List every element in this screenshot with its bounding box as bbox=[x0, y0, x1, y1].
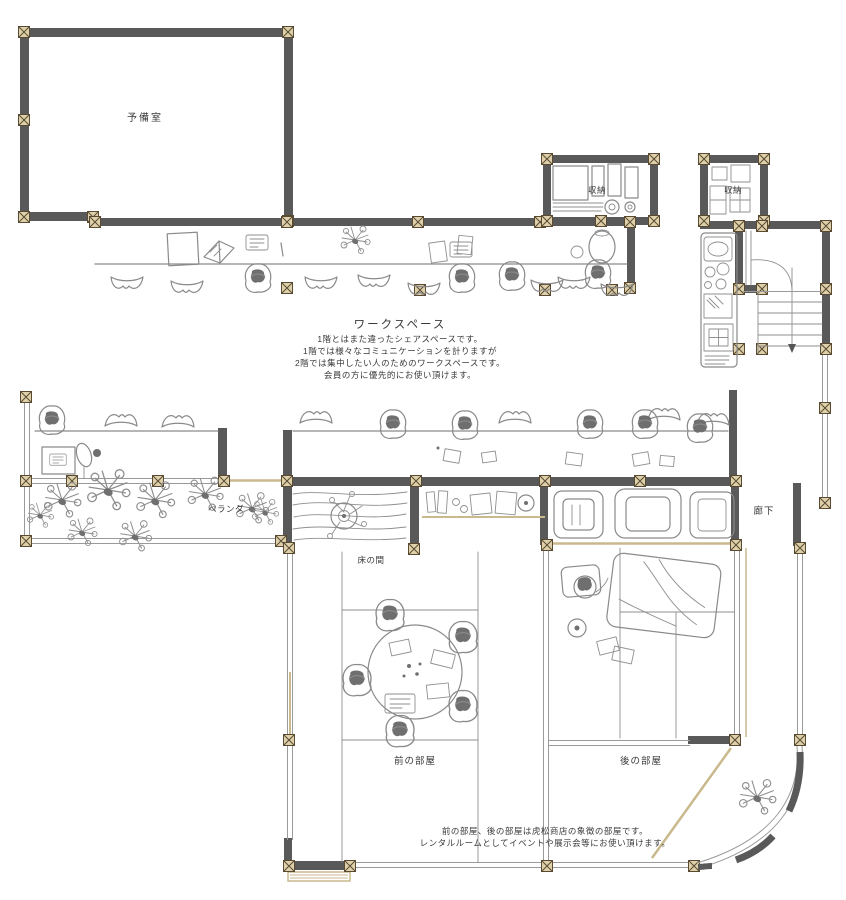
person-figure bbox=[577, 410, 602, 438]
cushion-storage bbox=[554, 489, 734, 538]
column-marker-icon bbox=[19, 27, 30, 38]
column-marker-icon bbox=[21, 476, 32, 487]
storage-1-label: 収納 bbox=[588, 185, 606, 195]
back-room-label: 後の部屋 bbox=[620, 755, 662, 767]
column-marker-icon bbox=[90, 217, 101, 228]
column-marker-icon bbox=[649, 154, 660, 165]
plant-sketch bbox=[27, 502, 53, 527]
column-marker-icon bbox=[734, 221, 745, 232]
easel-sketch bbox=[74, 441, 95, 468]
plant-sketch bbox=[88, 470, 130, 510]
corridor-label: 廊下 bbox=[753, 505, 774, 517]
column-markers bbox=[19, 27, 832, 872]
column-marker-icon bbox=[820, 498, 831, 509]
curved-corner-wall bbox=[697, 746, 802, 868]
stairs-down-arrow-icon bbox=[788, 344, 796, 353]
workspace-desc-line: 会員の方に優先的にお使い頂けます。 bbox=[324, 370, 476, 380]
spare-room-label: 予備室 bbox=[127, 111, 163, 124]
column-marker-icon bbox=[282, 476, 293, 487]
workspace-desc-line: 1階では様々なコミュニケーションを計りますが bbox=[303, 346, 497, 356]
column-marker-icon bbox=[19, 212, 30, 223]
front-room-contents bbox=[342, 552, 478, 862]
plant-sketch bbox=[120, 521, 152, 551]
column-marker-icon bbox=[283, 27, 294, 38]
column-marker-icon bbox=[219, 476, 230, 487]
paper-sketch bbox=[426, 683, 449, 699]
person-figure bbox=[449, 621, 477, 652]
desk-sketch bbox=[42, 447, 75, 474]
column-marker-icon bbox=[795, 543, 806, 554]
person-figure bbox=[499, 262, 524, 290]
paper-sketch bbox=[431, 650, 456, 669]
column-marker-icon bbox=[284, 543, 295, 554]
laptop-sketch bbox=[246, 235, 268, 250]
chair-sketch bbox=[358, 275, 390, 286]
chair-sketch bbox=[171, 281, 203, 292]
column-marker-icon bbox=[19, 115, 30, 126]
column-marker-icon bbox=[411, 476, 422, 487]
workspace-top-desk bbox=[95, 226, 633, 295]
thresholds-and-braces bbox=[224, 481, 746, 882]
column-marker-icon bbox=[282, 217, 293, 228]
staircase bbox=[743, 231, 822, 353]
plant-sketch bbox=[45, 483, 81, 518]
chair-sketch bbox=[300, 412, 332, 423]
chair-sketch bbox=[305, 277, 337, 288]
person-figure bbox=[452, 411, 477, 439]
column-marker-icon bbox=[699, 216, 710, 227]
workspace-desc-line: 1階とはまた違ったシェアスペースです。 bbox=[317, 334, 482, 344]
column-marker-icon bbox=[21, 536, 32, 547]
column-marker-icon bbox=[596, 216, 607, 227]
tokonoma-label: 床の間 bbox=[357, 555, 384, 565]
column-marker-icon bbox=[409, 544, 420, 555]
person-figure bbox=[687, 414, 712, 442]
column-marker-icon bbox=[699, 154, 710, 165]
paper-sketch bbox=[389, 639, 411, 656]
chair-sketch bbox=[162, 416, 194, 427]
futon-sketch bbox=[606, 552, 722, 639]
person-figure bbox=[632, 410, 657, 438]
person-figure bbox=[449, 690, 477, 721]
workspace-title: ワークスペース bbox=[354, 318, 447, 331]
column-marker-icon bbox=[635, 476, 646, 487]
column-marker-icon bbox=[730, 735, 741, 746]
chair-sketch bbox=[105, 415, 137, 426]
paper-sketch bbox=[457, 235, 473, 254]
tokonoma-alcove bbox=[293, 492, 407, 541]
person-figure bbox=[386, 715, 414, 746]
back-room-contents bbox=[561, 548, 734, 738]
person-figure bbox=[343, 664, 371, 695]
chair-sketch bbox=[499, 412, 531, 423]
paper-sketch bbox=[429, 241, 448, 263]
column-marker-icon bbox=[649, 216, 660, 227]
workspace-desc-line: 2階では集中したい人のためのワークスペースです。 bbox=[295, 358, 505, 368]
column-marker-icon bbox=[345, 861, 356, 872]
column-marker-icon bbox=[759, 154, 770, 165]
note-line: レンタルルームとしてイベントや展示会等にお使い頂けます。 bbox=[420, 838, 671, 848]
veranda-label: ベランダ bbox=[208, 504, 244, 514]
utility-cabinet bbox=[701, 233, 737, 367]
column-marker-icon bbox=[625, 217, 636, 228]
person-figure bbox=[39, 406, 64, 434]
floor-plan-page: 予備室 収納 収納 ワークスペース 1階とはまた違ったシェアスペースです。 1階… bbox=[0, 0, 846, 900]
pen-sketch bbox=[281, 243, 283, 256]
plant-sketch bbox=[740, 780, 776, 815]
open-book-sketch bbox=[204, 241, 234, 263]
paper-sketch bbox=[565, 452, 583, 466]
column-marker-icon bbox=[820, 403, 831, 414]
column-marker-icon bbox=[689, 861, 700, 872]
bowl-sketch bbox=[571, 246, 583, 258]
chair-sketch bbox=[648, 409, 680, 420]
shelf-items bbox=[426, 491, 534, 515]
paper-sketch bbox=[443, 449, 461, 464]
workspace-mid-left bbox=[35, 406, 218, 478]
column-marker-icon bbox=[284, 735, 295, 746]
note-line: 前の部屋、後の部屋は虎松商店の象徴の部屋です。 bbox=[442, 826, 648, 836]
plant-sketch bbox=[137, 482, 175, 518]
plant-sketch bbox=[341, 226, 370, 254]
column-marker-icon bbox=[542, 154, 553, 165]
paper-sketch bbox=[660, 455, 675, 466]
column-marker-icon bbox=[540, 476, 551, 487]
column-marker-icon bbox=[731, 476, 742, 487]
paper-sketch bbox=[167, 232, 199, 266]
column-marker-icon bbox=[284, 861, 295, 872]
laptop-sketch bbox=[50, 454, 67, 465]
column-marker-icon bbox=[734, 284, 745, 295]
column-marker-icon bbox=[757, 221, 768, 232]
column-marker-icon bbox=[795, 735, 806, 746]
column-marker-icon bbox=[731, 540, 742, 551]
person-figure bbox=[449, 264, 474, 292]
column-marker-icon bbox=[413, 217, 424, 228]
column-marker-icon bbox=[21, 392, 32, 403]
paper-sketch bbox=[481, 451, 496, 463]
column-marker-icon bbox=[821, 221, 832, 232]
storage-2-label: 収納 bbox=[724, 185, 742, 195]
laptop-sketch bbox=[385, 694, 415, 713]
column-marker-icon bbox=[542, 861, 553, 872]
paper-sketch bbox=[632, 452, 650, 467]
cushion-sketch bbox=[612, 646, 634, 664]
column-marker-icon bbox=[542, 540, 553, 551]
column-marker-icon bbox=[821, 344, 832, 355]
front-room-label: 前の部屋 bbox=[394, 755, 436, 767]
column-marker-icon bbox=[734, 344, 745, 355]
plant-sketch bbox=[68, 518, 97, 546]
person-figure bbox=[376, 599, 404, 630]
chair-sketch bbox=[111, 277, 143, 288]
workspace-mid-right bbox=[293, 409, 729, 467]
person-figure bbox=[245, 264, 270, 292]
column-marker-icon bbox=[821, 284, 832, 295]
column-marker-icon bbox=[282, 283, 293, 294]
person-figure bbox=[380, 410, 405, 438]
floor-plan-drawing: 予備室 収納 収納 ワークスペース 1階とはまた違ったシェアスペースです。 1階… bbox=[0, 0, 846, 900]
stool-sketch bbox=[93, 449, 101, 457]
column-marker-icon bbox=[542, 216, 553, 227]
